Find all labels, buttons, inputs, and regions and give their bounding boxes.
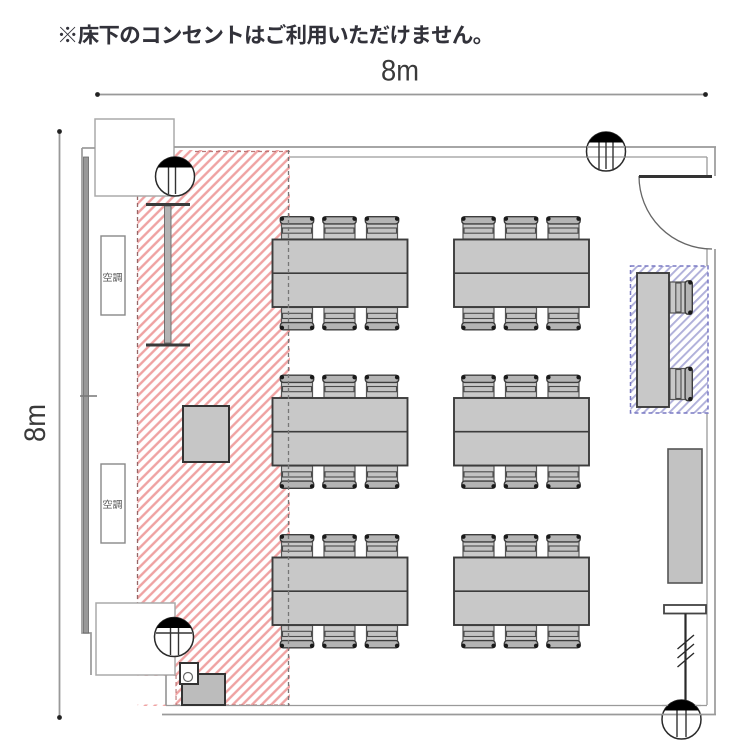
svg-text:8m: 8m <box>19 404 52 442</box>
svg-text:8m: 8m <box>381 55 419 88</box>
